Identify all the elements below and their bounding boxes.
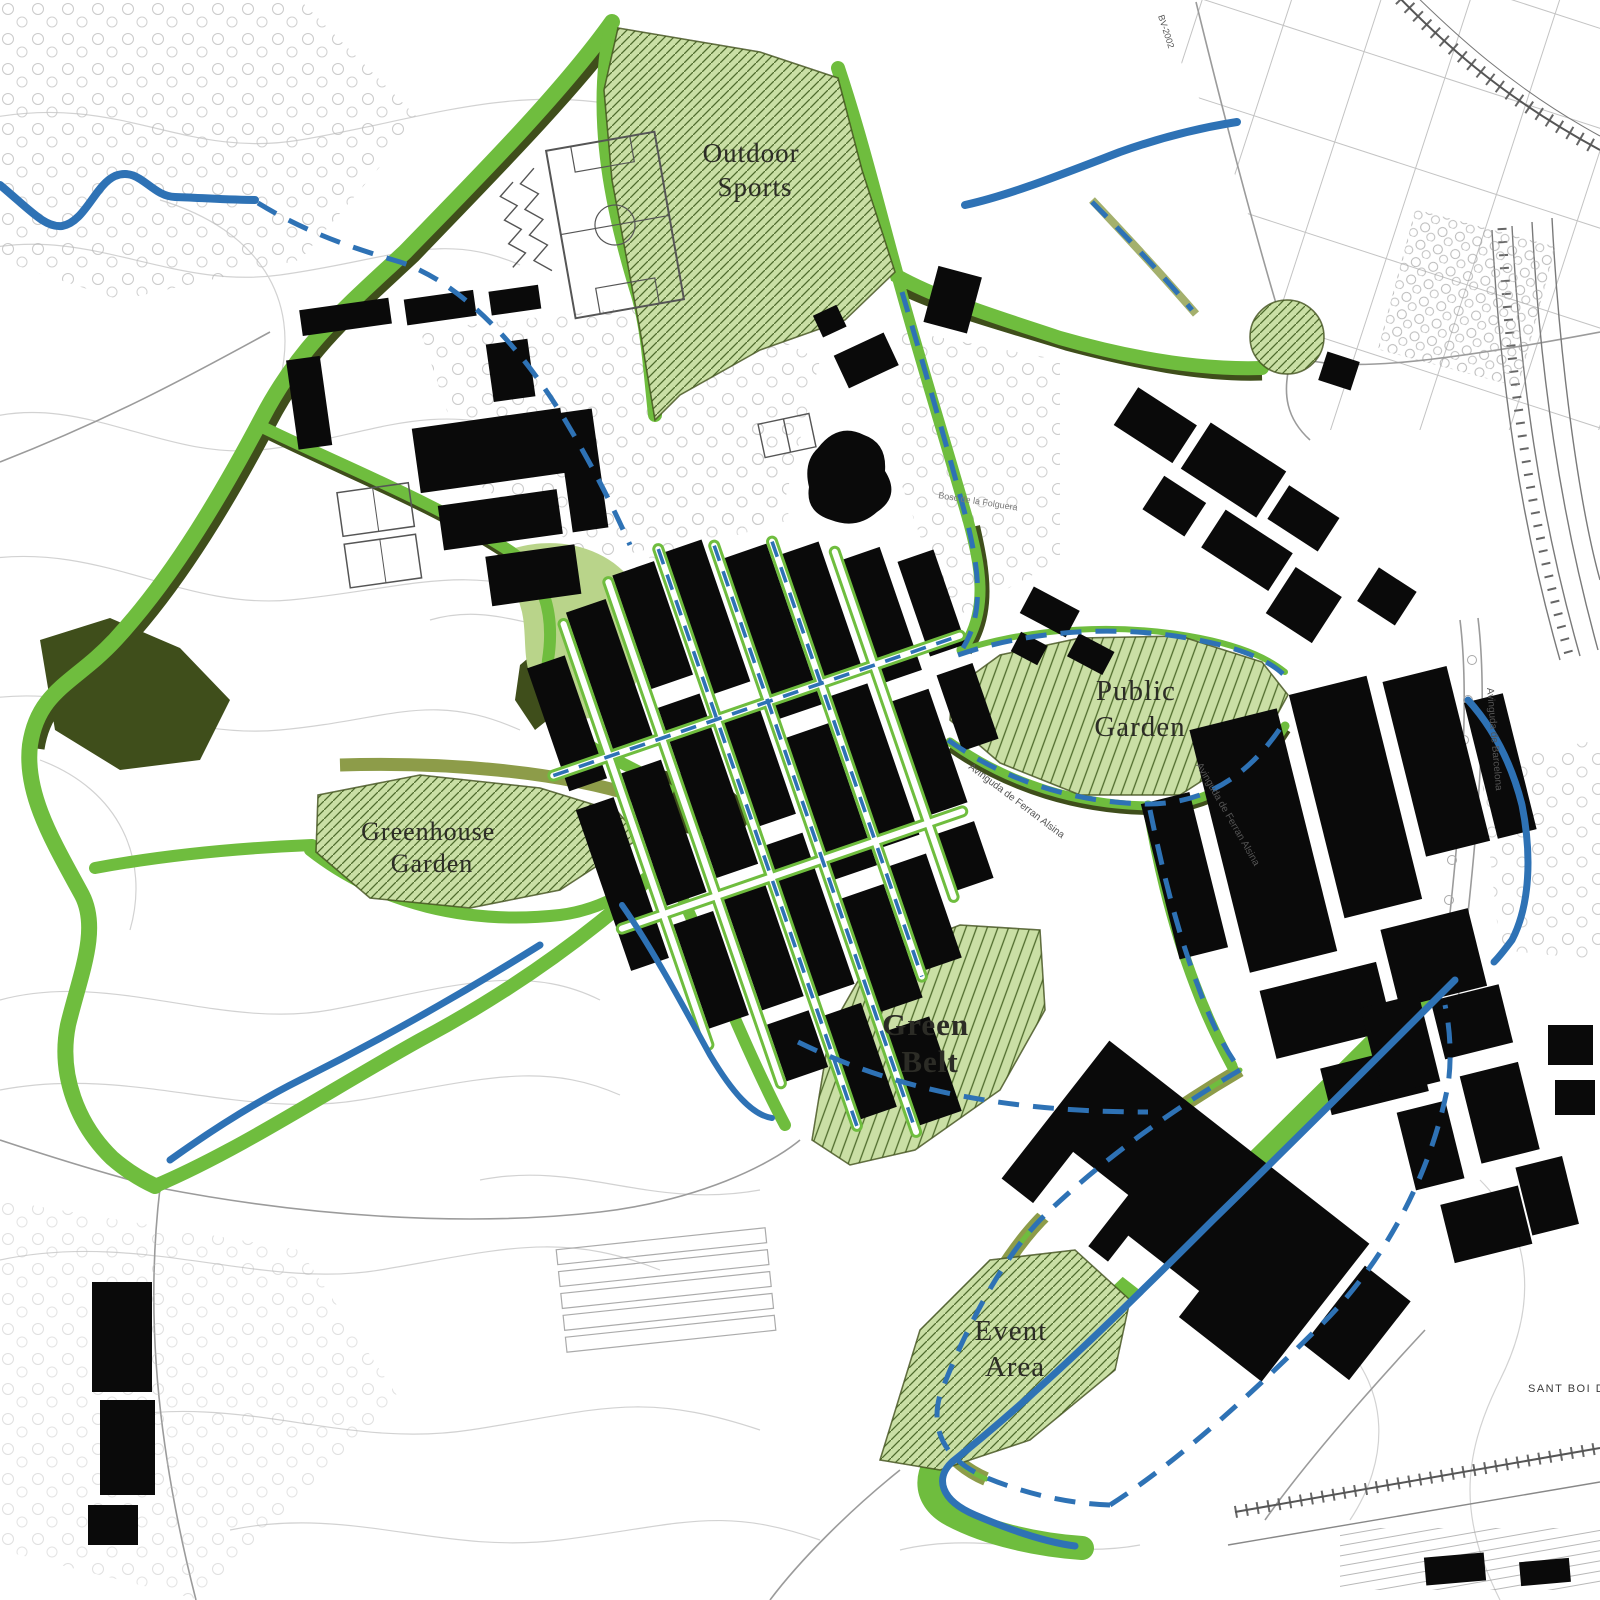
- street-label-bv-road: BV-2002: [1156, 14, 1176, 50]
- east-buildings: [1360, 970, 1581, 1271]
- civic-building: [807, 431, 891, 524]
- map-svg: Avinguda de Ferran Alsina Avinguda de Fe…: [0, 0, 1600, 1600]
- terraced-strips: [556, 1228, 776, 1352]
- corner-label: SANT BOI DE: [1528, 1383, 1600, 1395]
- railway-top-right: [1392, 0, 1600, 150]
- area-roundabout-green: [1250, 300, 1324, 374]
- masterplan-map: Avinguda de Ferran Alsina Avinguda de Fe…: [0, 0, 1600, 1600]
